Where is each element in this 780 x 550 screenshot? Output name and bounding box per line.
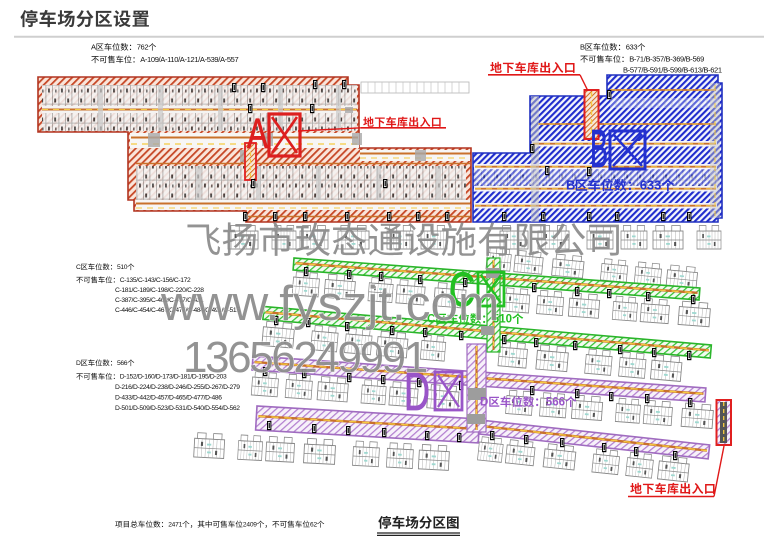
- svg-text:B: B: [590, 119, 608, 179]
- svg-text:A: A: [247, 110, 268, 158]
- svg-text:566: 566: [117, 360, 128, 367]
- svg-text:13656249991: 13656249991: [183, 333, 427, 382]
- svg-text:2409: 2409: [243, 522, 257, 529]
- svg-text:C: C: [76, 264, 81, 271]
- svg-text:B: B: [580, 43, 585, 52]
- svg-text:D-433/D-442/D-457/D-465/D-477/: D-433/D-442/D-457/D-465/D-477/D-486: [115, 395, 222, 402]
- svg-text:62: 62: [310, 522, 317, 529]
- svg-text:A-109/A-110/A-121/A-539/A-557: A-109/A-110/A-121/A-539/A-557: [140, 55, 238, 64]
- svg-text:B-577/B-591/B-599/B-613/B-621: B-577/B-591/B-599/B-613/B-621: [623, 66, 722, 75]
- svg-text:D-216/D-224/D-238/D-246/D-255/: D-216/D-224/D-238/D-246/D-255/D-267/D-27…: [115, 384, 240, 391]
- svg-text:2471: 2471: [168, 522, 182, 529]
- svg-text:633: 633: [626, 43, 638, 52]
- svg-text:A: A: [91, 43, 97, 52]
- svg-text:D-501/D-509/D-523/D-531/D-540/: D-501/D-509/D-523/D-531/D-540/D-554/D-56…: [115, 405, 240, 412]
- svg-text:D: D: [480, 397, 488, 409]
- svg-text:762: 762: [137, 43, 149, 52]
- svg-text:www.fyszjt.com: www.fyszjt.com: [160, 276, 499, 331]
- svg-text:633: 633: [640, 178, 662, 193]
- svg-text:B: B: [566, 178, 575, 193]
- svg-text:566: 566: [546, 397, 565, 409]
- svg-text:510: 510: [117, 264, 128, 271]
- svg-text:B-71/B-357/B-369/B-569: B-71/B-357/B-369/B-569: [629, 55, 704, 64]
- svg-text:D: D: [76, 360, 81, 367]
